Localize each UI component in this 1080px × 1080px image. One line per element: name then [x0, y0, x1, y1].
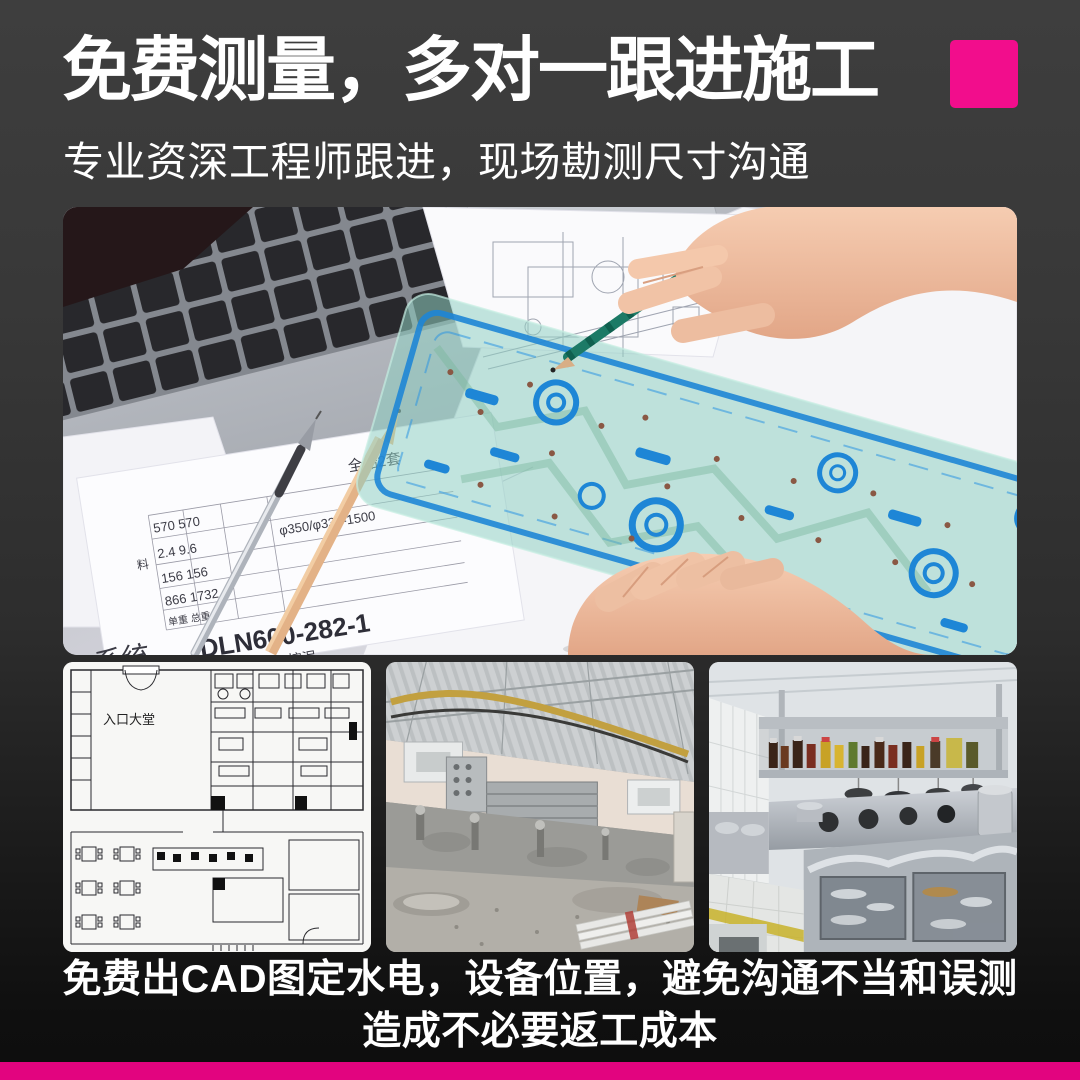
gallery-photo-commercial-kitchen [709, 662, 1017, 952]
caption-block: 免费出CAD图定水电，设备位置，避免沟通不当和误测 造成不必要返工成本 [0, 954, 1080, 1058]
plate-cabinet [804, 832, 1017, 952]
accent-square [950, 40, 1018, 108]
hero-photo-site-survey: 570 570 2.4 9.6 φ350/φ330-1500 156 156 8… [63, 207, 1017, 655]
gallery-photo-cad-floor-plan: 入口大堂 [63, 662, 371, 952]
caption-line-1: 免费出CAD图定水电，设备位置，避免沟通不当和误测 [0, 954, 1080, 1006]
doorway [674, 812, 694, 882]
lobby-label: 入口大堂 [103, 712, 155, 727]
page-title: 免费测量，多对一跟进施工 [62, 34, 878, 108]
gallery: 入口大堂 [63, 662, 1017, 952]
page-subtitle: 专业资深工程师跟进，现场勘测尺寸沟通 [63, 128, 810, 188]
hero-photo-illustration: 570 570 2.4 9.6 φ350/φ330-1500 156 156 8… [63, 207, 1017, 655]
bottom-accent-bar [0, 1062, 1080, 1080]
gallery-photo-construction-site [386, 662, 694, 952]
table-material-label: 料 [136, 557, 150, 573]
promo-page: 免费测量，多对一跟进施工 专业资深工程师跟进，现场勘测尺寸沟通 [0, 0, 1080, 1080]
caption-line-2: 造成不必要返工成本 [0, 1006, 1080, 1058]
floor-sink [719, 937, 759, 952]
